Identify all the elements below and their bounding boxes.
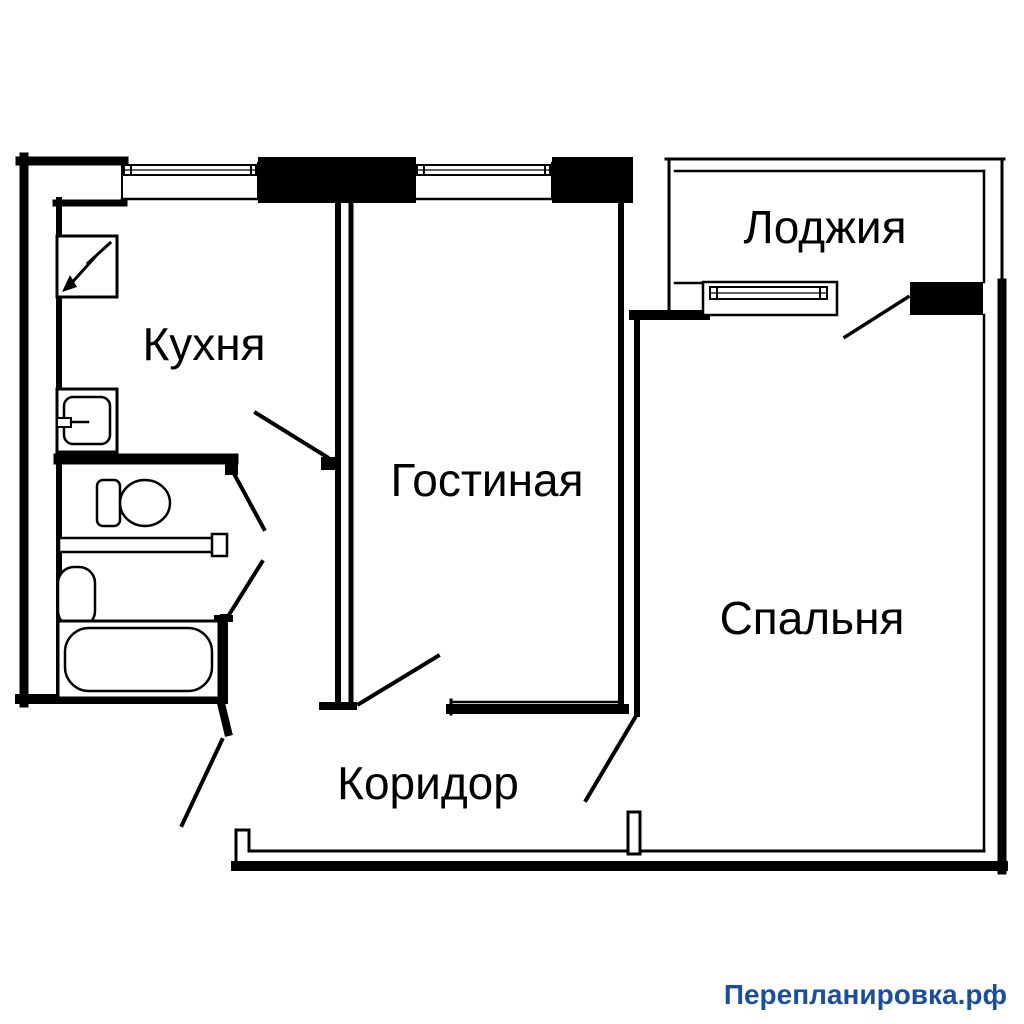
wall-entrance-jamb bbox=[236, 830, 249, 864]
kitchen-door bbox=[256, 413, 338, 470]
partition-living-bedroom bbox=[621, 203, 637, 714]
living-south-wall bbox=[359, 656, 624, 714]
toilet-door-leaf bbox=[232, 470, 264, 529]
bathtub-icon bbox=[58, 621, 219, 698]
bedroom-door-leaf bbox=[586, 716, 636, 800]
kitchen-window bbox=[122, 163, 258, 199]
label-living: Гостиная bbox=[390, 454, 583, 506]
washbasin-icon bbox=[58, 567, 95, 627]
kitchen-sink-icon bbox=[57, 389, 117, 452]
site-watermark: Перепланировка.рф bbox=[724, 979, 1007, 1010]
living-window bbox=[415, 163, 552, 199]
toilet-icon bbox=[97, 480, 170, 526]
toilet-room bbox=[97, 464, 264, 529]
divider-wall-bar bbox=[59, 538, 214, 552]
bathroom bbox=[58, 562, 262, 700]
floor-plan-drawing: Кухня Гостиная Лоджия Спальня Коридор Пе… bbox=[0, 0, 1024, 1024]
electric-panel-icon bbox=[57, 236, 117, 297]
partition-kitchen-living bbox=[323, 203, 353, 706]
balcony-door-leaf bbox=[845, 297, 908, 337]
label-corridor: Коридор bbox=[337, 757, 519, 809]
bedroom-structure bbox=[586, 315, 984, 854]
wall-bedroom-north-east-piece bbox=[910, 282, 983, 315]
entrance-door-leaf bbox=[182, 740, 222, 825]
kitchen-door-leaf bbox=[256, 413, 327, 457]
toilet-tank bbox=[97, 480, 120, 526]
bathroom-door-leaf bbox=[227, 562, 262, 618]
loggia-window bbox=[703, 282, 837, 315]
floor-plan: Кухня Гостиная Лоджия Спальня Коридор Пе… bbox=[0, 0, 1024, 1024]
label-loggia: Лоджия bbox=[744, 201, 907, 253]
wall-bedroom-door-stub bbox=[628, 812, 640, 854]
bedroom-north-wall bbox=[634, 282, 983, 337]
wall-pier-right-of-living-window bbox=[552, 157, 633, 203]
bathtub-outer bbox=[58, 621, 219, 698]
toilet-bath-divider bbox=[59, 534, 227, 556]
label-kitchen: Кухня bbox=[142, 318, 265, 370]
sink-faucet-base bbox=[57, 418, 71, 427]
living-door-leaf bbox=[359, 656, 438, 704]
divider-wall-end-cap bbox=[212, 534, 227, 556]
toilet-bowl bbox=[120, 480, 170, 526]
wall-pier-between-windows bbox=[258, 157, 416, 203]
label-bedroom: Спальня bbox=[720, 592, 905, 644]
